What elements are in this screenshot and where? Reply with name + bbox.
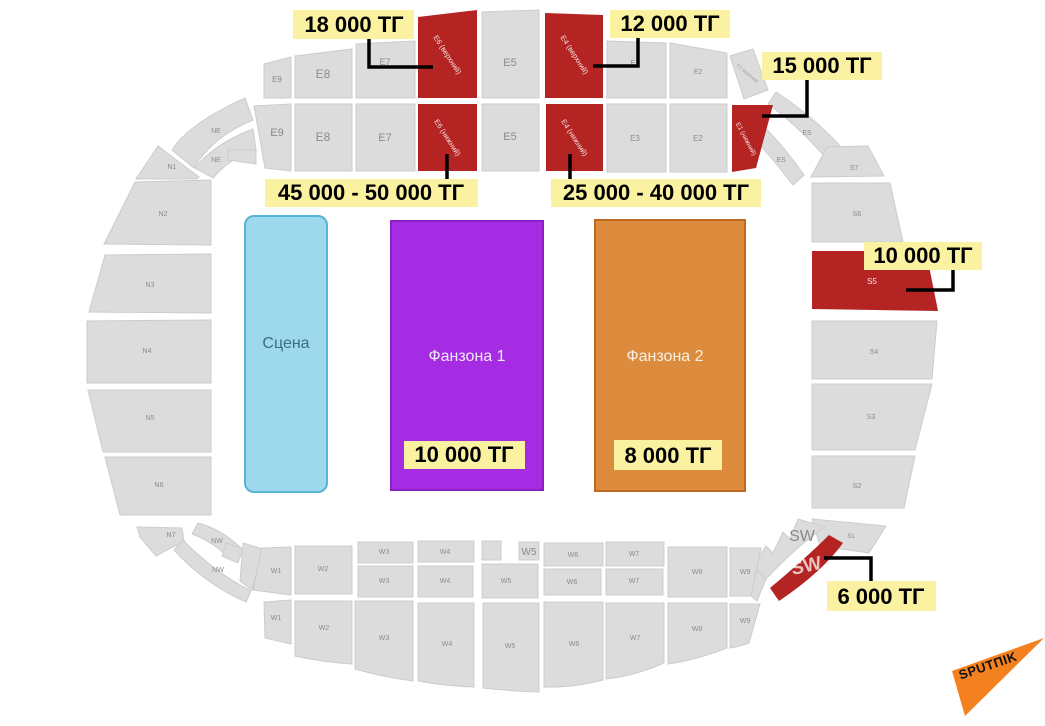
svg-text:E2: E2 — [693, 134, 703, 143]
svg-text:W5: W5 — [522, 547, 537, 558]
svg-text:SW: SW — [789, 553, 823, 580]
svg-text:NW: NW — [212, 567, 224, 574]
svg-text:N1: N1 — [168, 164, 177, 171]
svg-text:W4: W4 — [442, 641, 453, 648]
svg-text:W2: W2 — [319, 625, 330, 632]
svg-text:W7: W7 — [629, 551, 640, 558]
svg-text:N2: N2 — [159, 211, 168, 218]
svg-text:ES: ES — [776, 157, 786, 164]
svg-text:W4: W4 — [440, 549, 451, 556]
svg-text:SW: SW — [789, 528, 816, 545]
svg-text:E5: E5 — [503, 57, 516, 69]
svg-text:Фанзона 2: Фанзона 2 — [626, 348, 703, 365]
svg-text:NE: NE — [211, 128, 221, 135]
svg-text:W8: W8 — [692, 569, 703, 576]
svg-text:Фанзона 1: Фанзона 1 — [428, 348, 505, 365]
svg-text:E2: E2 — [694, 69, 703, 76]
svg-text:ES: ES — [802, 130, 812, 137]
svg-text:Сцена: Сцена — [262, 335, 309, 352]
svg-text:NE: NE — [211, 157, 221, 164]
svg-text:W5: W5 — [505, 643, 516, 650]
svg-text:W2: W2 — [318, 566, 329, 573]
svg-text:N7: N7 — [167, 532, 176, 539]
svg-text:6 000 ТГ: 6 000 ТГ — [837, 584, 925, 609]
svg-text:W6: W6 — [569, 641, 580, 648]
svg-text:W9: W9 — [740, 618, 751, 625]
svg-text:S5: S5 — [867, 277, 877, 286]
svg-text:E3: E3 — [630, 134, 640, 143]
svg-text:N4: N4 — [143, 348, 152, 355]
svg-text:W7: W7 — [629, 578, 640, 585]
svg-text:N3: N3 — [146, 282, 155, 289]
svg-text:E9: E9 — [272, 75, 282, 84]
svg-text:10 000 ТГ: 10 000 ТГ — [873, 243, 973, 268]
svg-text:S4: S4 — [870, 349, 879, 356]
svg-text:E7: E7 — [378, 132, 391, 144]
svg-text:S3: S3 — [867, 414, 876, 421]
svg-text:NW: NW — [211, 538, 223, 545]
svg-text:W9: W9 — [740, 569, 751, 576]
svg-text:W6: W6 — [567, 579, 578, 586]
svg-text:S6: S6 — [853, 211, 862, 218]
svg-text:N5: N5 — [146, 415, 155, 422]
svg-text:W6: W6 — [568, 552, 579, 559]
svg-text:W1: W1 — [271, 615, 282, 622]
svg-text:12 000 ТГ: 12 000 ТГ — [620, 11, 720, 36]
svg-text:S2: S2 — [853, 483, 862, 490]
svg-text:W8: W8 — [692, 626, 703, 633]
svg-text:E5: E5 — [503, 131, 516, 143]
svg-text:E9: E9 — [270, 127, 283, 139]
svg-text:W4: W4 — [440, 578, 451, 585]
svg-text:W3: W3 — [379, 635, 390, 642]
svg-text:E8: E8 — [316, 67, 331, 81]
svg-text:W1: W1 — [271, 568, 282, 575]
svg-text:W5: W5 — [501, 578, 512, 585]
svg-text:18 000 ТГ: 18 000 ТГ — [304, 12, 404, 37]
svg-text:15 000 ТГ: 15 000 ТГ — [772, 53, 872, 78]
svg-text:W3: W3 — [379, 549, 390, 556]
svg-text:S1: S1 — [847, 534, 855, 540]
svg-text:N6: N6 — [155, 482, 164, 489]
svg-text:25 000 - 40 000 ТГ: 25 000 - 40 000 ТГ — [563, 180, 750, 205]
svg-text:8 000 ТГ: 8 000 ТГ — [624, 443, 712, 468]
svg-text:W3: W3 — [379, 578, 390, 585]
svg-text:10 000 ТГ: 10 000 ТГ — [414, 442, 514, 467]
svg-text:S7: S7 — [850, 165, 859, 172]
svg-text:45 000 - 50 000 ТГ: 45 000 - 50 000 ТГ — [278, 180, 465, 205]
svg-text:E8: E8 — [316, 130, 331, 144]
svg-text:W7: W7 — [630, 635, 641, 642]
